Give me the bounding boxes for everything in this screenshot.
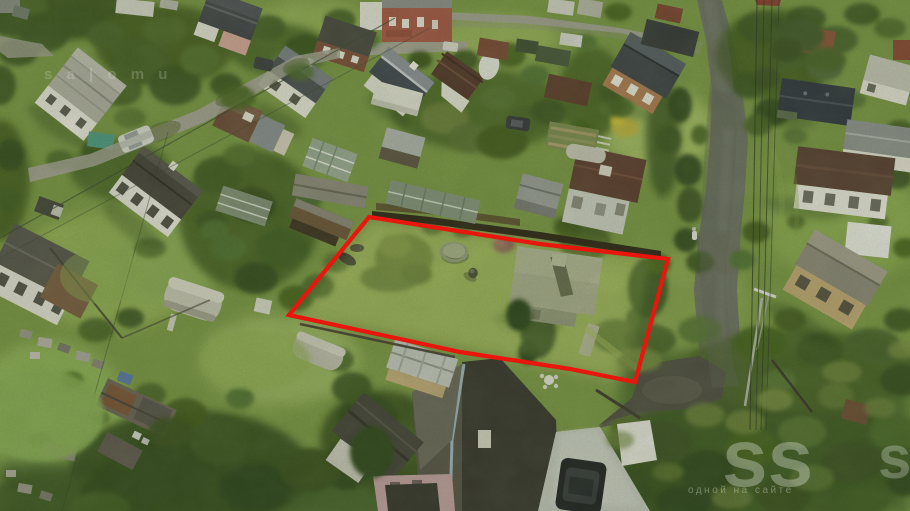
svg-text:одной на сайте: одной на сайте (688, 485, 794, 496)
svg-text:s: s (878, 424, 910, 491)
svg-text:s a | о m u: s a | о m u (44, 66, 172, 83)
